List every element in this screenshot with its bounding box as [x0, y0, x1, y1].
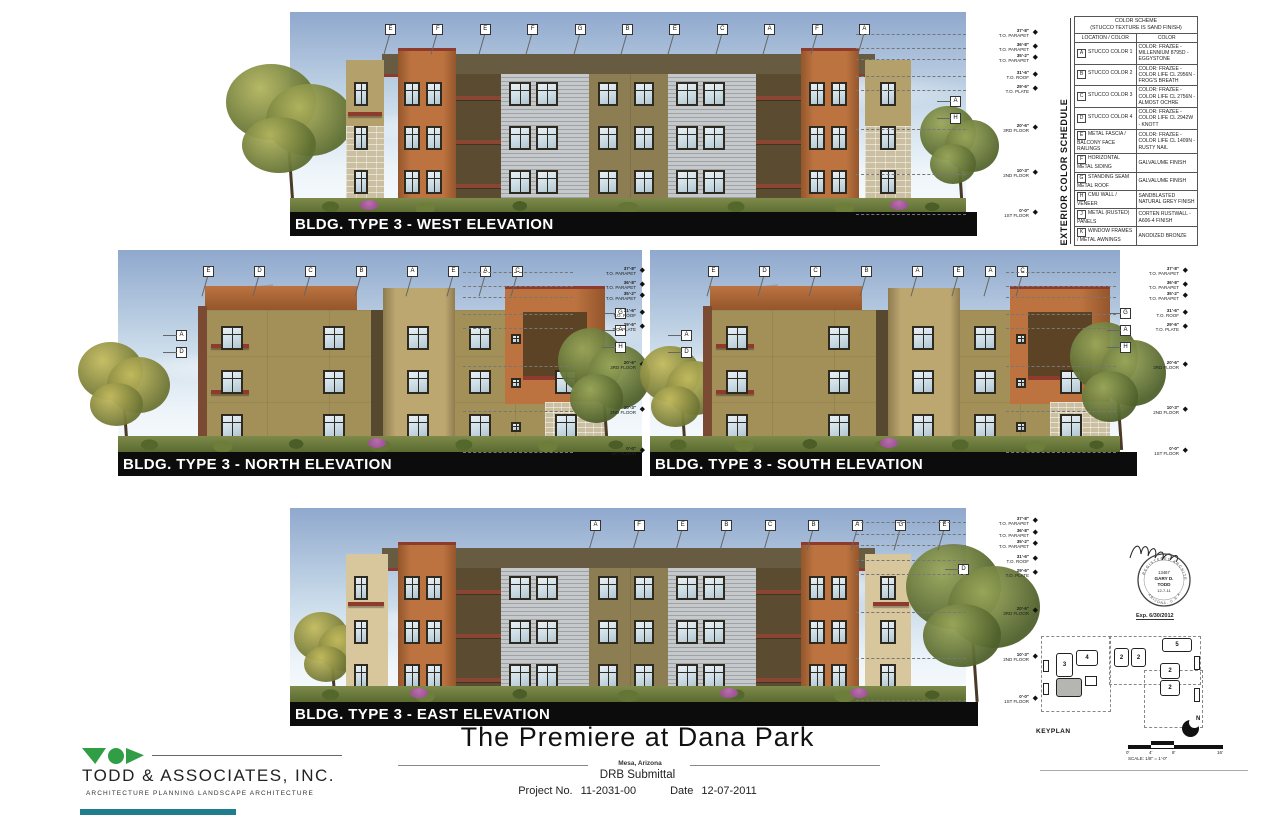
level-text: ◆ — [640, 267, 645, 275]
window — [676, 170, 698, 194]
window — [831, 620, 847, 644]
seal-expiry: Exp. 6/30/2012 — [1136, 613, 1174, 620]
level-text: ◆ — [1033, 607, 1038, 615]
level-marker: 31'-6"T.O. ROOF◆ — [575, 308, 645, 318]
callout-tag: D — [176, 347, 187, 358]
window — [703, 576, 725, 600]
color-text: COLOR: FRAZEE - MILLENNIUM 8795D - EGGYS… — [1136, 42, 1198, 64]
schedule-location-cell: JMETAL (RUSTED) PANELS — [1075, 209, 1137, 227]
callout-tag: B — [356, 266, 367, 277]
level-marker: 29'-6"T.O. PLATE◆ — [968, 568, 1038, 578]
keyplan-garage — [1043, 683, 1049, 695]
level-marker: 35'-2"T.O. PARAPET◆ — [968, 539, 1038, 549]
window — [676, 576, 698, 600]
scale-caption: SCALE: 1/8" = 1'-0" — [1128, 756, 1167, 761]
south-elevation-label: BLDG. TYPE 3 - SOUTH ELEVATION — [655, 456, 923, 473]
level-marker: 36'-8"T.O. PARAPET◆ — [575, 280, 645, 290]
north-elevation-drawing: EDCBA EAC AD GAH BLDG. TYPE 3 - NORTH EL… — [118, 250, 642, 476]
level-text: ◆ — [1033, 71, 1038, 79]
level-text: 3RD FLOOR — [968, 611, 1029, 616]
window — [676, 82, 698, 106]
window — [831, 664, 847, 688]
color-text: COLOR: FRAZEE - COLOR LIFE CL 2756N - AL… — [1136, 86, 1198, 108]
window — [426, 664, 442, 688]
level-marker: 31'-6"T.O. ROOF◆ — [1118, 308, 1188, 318]
window — [509, 82, 531, 106]
level-text: ◆ — [640, 309, 645, 317]
level-marker: 36'-8"T.O. PARAPET◆ — [1118, 280, 1188, 290]
color-text: COLOR: FRAZEE - COLOR LIFE CL 2956N - FR… — [1136, 64, 1198, 86]
teal-accent-bar — [80, 809, 236, 815]
purple-shrub — [368, 438, 386, 448]
schedule-col1-header: LOCATION / COLOR — [1075, 33, 1137, 42]
east-facade — [346, 542, 911, 694]
level-text: ◆ — [1033, 540, 1038, 548]
window — [426, 82, 442, 106]
level-marker: 36'-8"T.O. PARAPET◆ — [968, 528, 1038, 538]
schedule-location-cell: KWINDOW FRAMES / METAL AWNINGS — [1075, 227, 1137, 245]
tree-foliage — [304, 646, 349, 682]
callout-tag: B — [721, 520, 732, 531]
callout-tag: D — [681, 347, 692, 358]
level-marker: 10'-3"2ND FLOOR◆ — [575, 405, 645, 415]
schedule-vertical-title: EXTERIOR COLOR SCHEDULE — [1059, 16, 1069, 246]
keyplan-building-3: 3 — [1056, 653, 1073, 677]
level-text: ◆ — [1183, 292, 1188, 300]
level-text: ◆ — [1183, 309, 1188, 317]
level-text: ◆ — [1183, 267, 1188, 275]
callout-tag: F — [812, 24, 823, 35]
color-key-box: B — [1077, 70, 1086, 79]
north-elevation-title-bar: BLDG. TYPE 3 - NORTH ELEVATION — [118, 452, 642, 476]
window — [509, 620, 531, 644]
schedule-location-cell: EMETAL FASCIA / BALCONY FACE RAILINGS — [1075, 129, 1137, 154]
window — [404, 170, 420, 194]
keyplan-outbuilding — [1085, 676, 1097, 686]
level-text: 3RD FLOOR — [1118, 365, 1179, 370]
window — [354, 82, 368, 106]
level-text: 1ST FLOOR — [968, 699, 1029, 704]
window — [426, 576, 442, 600]
level-text: 1ST FLOOR — [968, 213, 1029, 218]
project-no-value: 11-2031-00 — [581, 785, 636, 797]
level-marker: 20'-6"3RD FLOOR◆ — [968, 606, 1038, 616]
color-key-box: E — [1077, 131, 1086, 140]
schedule-rows: ASTUCCO COLOR 1 COLOR: FRAZEE - MILLENNI… — [1075, 42, 1198, 245]
purple-shrub — [890, 200, 908, 210]
window — [809, 576, 825, 600]
seal-date: 12-7-11 — [1157, 588, 1171, 593]
schedule-header-line1: COLOR SCHEME — [1115, 18, 1157, 24]
keyplan-building-2: 2 — [1160, 663, 1180, 679]
purple-shrub — [850, 688, 868, 698]
window — [634, 126, 654, 150]
window — [598, 82, 618, 106]
level-text: ◆ — [640, 323, 645, 331]
level-text: T.O. PARAPET — [968, 58, 1029, 63]
level-marker: 0'-0"1ST FLOOR◆ — [1118, 446, 1188, 456]
schedule-row: CSTUCCO COLOR 3 COLOR: FRAZEE - COLOR LI… — [1075, 86, 1198, 108]
callout-tag: E — [448, 266, 459, 277]
window — [831, 82, 847, 106]
level-text: T.O. PARAPET — [575, 296, 636, 301]
date-label: Date — [670, 785, 693, 797]
level-text: T.O. PARAPET — [968, 521, 1029, 526]
west-elevation-drawing: EFEFGBECAFA AH BLDG. TYPE 3 - WEST ELEVA… — [290, 12, 977, 236]
tree — [226, 64, 358, 204]
north-elevation-label: BLDG. TYPE 3 - NORTH ELEVATION — [123, 456, 392, 473]
level-marker: 35'-2"T.O. PARAPET◆ — [575, 291, 645, 301]
window — [703, 664, 725, 688]
color-key-box: F — [1077, 155, 1086, 164]
level-marker: 29'-6"T.O. PLATE◆ — [575, 322, 645, 332]
callout-tag: G — [575, 24, 586, 35]
level-text: ◆ — [1033, 85, 1038, 93]
schedule-location-cell: CSTUCCO COLOR 3 — [1075, 86, 1137, 108]
drawing-sheet: EFEFGBECAFA AH BLDG. TYPE 3 - WEST ELEVA… — [0, 0, 1275, 825]
color-text: GALVALUME FINISH — [1136, 172, 1198, 190]
level-marker: 29'-6"T.O. PLATE◆ — [1118, 322, 1188, 332]
callout-tag: A — [590, 520, 601, 531]
color-key-box: D — [1077, 114, 1086, 123]
color-key-box: C — [1077, 92, 1086, 101]
level-text: T.O. PARAPET — [968, 533, 1029, 538]
window — [809, 82, 825, 106]
callout-tag: B — [808, 520, 819, 531]
level-marker: 20'-6"3RD FLOOR◆ — [575, 360, 645, 370]
level-marker: 37'-8"T.O. PARAPET◆ — [968, 516, 1038, 526]
window — [404, 664, 420, 688]
level-marker: 37'-8"T.O. PARAPET◆ — [575, 266, 645, 276]
window — [536, 620, 558, 644]
callout-tag: D — [759, 266, 770, 277]
level-text: ◆ — [1183, 281, 1188, 289]
window — [809, 620, 825, 644]
north-facade — [205, 286, 605, 448]
level-text: ◆ — [1033, 529, 1038, 537]
level-text: ◆ — [1033, 124, 1038, 132]
level-text: 2ND FLOOR — [1118, 410, 1179, 415]
level-text: 2ND FLOOR — [968, 173, 1029, 178]
level-text: ◆ — [1033, 517, 1038, 525]
schedule-location-cell: HCMU WALL / VENEER — [1075, 190, 1137, 208]
level-text: T.O. PARAPET — [968, 33, 1029, 38]
level-marker: 36'-8"T.O. PARAPET◆ — [968, 42, 1038, 52]
keyplan-garage — [1194, 656, 1200, 670]
firm-logo-icon — [82, 748, 144, 766]
callout-tag: E — [953, 266, 964, 277]
callout-tag: E — [385, 24, 396, 35]
level-marker: 35'-2"T.O. PARAPET◆ — [1118, 291, 1188, 301]
window — [509, 576, 531, 600]
callout-tag: A — [985, 266, 996, 277]
level-text: 2ND FLOOR — [968, 657, 1029, 662]
window — [831, 576, 847, 600]
level-marker: 29'-6"T.O. PLATE◆ — [968, 84, 1038, 94]
level-marker: 31'-6"T.O. ROOF◆ — [968, 554, 1038, 564]
callout-tag: A — [950, 96, 961, 107]
firm-name: TODD & ASSOCIATES, INC. — [82, 766, 335, 786]
purple-shrub — [360, 200, 378, 210]
level-text: 1ST FLOOR — [575, 451, 636, 456]
window-grid — [346, 542, 911, 694]
callout-tag: A — [912, 266, 923, 277]
window — [880, 664, 896, 688]
schedule-row: HCMU WALL / VENEER SANDBLASTED NATURAL G… — [1075, 190, 1198, 208]
level-marker: 37'-8"T.O. PARAPET◆ — [1118, 266, 1188, 276]
window — [509, 126, 531, 150]
level-marker: 0'-0"1ST FLOOR◆ — [968, 694, 1038, 704]
callout-tag: F — [634, 520, 645, 531]
callout-tag: A — [681, 330, 692, 341]
window — [634, 576, 654, 600]
level-text: T.O. PARAPET — [575, 285, 636, 290]
logo-rule-line — [152, 755, 342, 756]
color-text: GALVALUME FINISH — [1136, 154, 1198, 172]
window — [676, 620, 698, 644]
seal-name1: GARY D. — [1155, 576, 1174, 581]
window — [598, 664, 618, 688]
west-elevation-label: BLDG. TYPE 3 - WEST ELEVATION — [295, 216, 554, 233]
firm-tagline: ARCHITECTURE PLANNING LANDSCAPE ARCHITEC… — [86, 790, 314, 797]
color-text: ANODIZED BRONZE — [1136, 227, 1198, 245]
callout-tag: B — [622, 24, 633, 35]
window — [831, 126, 847, 150]
level-text: ◆ — [640, 281, 645, 289]
level-ladder-east: 37'-8"T.O. PARAPET◆36'-8"T.O. PARAPET◆35… — [968, 508, 1038, 714]
level-text: T.O. PARAPET — [1118, 271, 1179, 276]
window — [880, 82, 896, 106]
window — [634, 170, 654, 194]
window — [703, 170, 725, 194]
window — [404, 126, 420, 150]
exterior-color-schedule: EXTERIOR COLOR SCHEDULE COLOR SCHEME (ST… — [1074, 16, 1198, 246]
window — [634, 82, 654, 106]
callout-row: EDCBA — [203, 266, 418, 277]
level-text: T.O. PLATE — [1118, 327, 1179, 332]
level-marker: 0'-0"1ST FLOOR◆ — [575, 446, 645, 456]
color-schedule-table: COLOR SCHEME (STUCCO TEXTURE IS SAND FIN… — [1074, 16, 1198, 246]
callout-stack: AD — [681, 330, 692, 358]
window — [634, 664, 654, 688]
logo-triangle-icon — [82, 748, 106, 764]
purple-shrub — [880, 438, 898, 448]
tree — [78, 342, 174, 450]
project-title: The Premiere at Dana Park — [0, 722, 1275, 753]
west-facade — [346, 48, 911, 200]
level-text: ◆ — [1033, 43, 1038, 51]
date-value: 12-07-2011 — [701, 785, 756, 797]
seal-number: 13467 — [1158, 570, 1170, 575]
schedule-bracket-line — [1070, 18, 1071, 244]
window — [703, 126, 725, 150]
level-text: ◆ — [1033, 555, 1038, 563]
window — [536, 126, 558, 150]
level-marker: 10'-3"2ND FLOOR◆ — [968, 652, 1038, 662]
color-key-box: K — [1077, 228, 1086, 237]
window — [404, 620, 420, 644]
window — [809, 170, 825, 194]
purple-shrub — [410, 688, 428, 698]
keyplan-building-5: 5 — [1162, 638, 1192, 652]
color-text: CORTEN RUSTWALL - A606-4 FINISH — [1136, 209, 1198, 227]
schedule-row: FHORIZONTAL METAL SIDING GALVALUME FINIS… — [1075, 154, 1198, 172]
level-text: T.O. PLATE — [968, 89, 1029, 94]
window — [880, 576, 896, 600]
window — [404, 82, 420, 106]
tree-foliage — [90, 383, 144, 426]
schedule-row: GSTANDING SEAM METAL ROOF GALVALUME FINI… — [1075, 172, 1198, 190]
location-text: STUCCO COLOR 1 — [1088, 49, 1132, 55]
keyplan-garage — [1194, 688, 1200, 702]
window — [703, 82, 725, 106]
west-elevation-title-bar: BLDG. TYPE 3 - WEST ELEVATION — [290, 212, 977, 236]
callout-tag: A — [764, 24, 775, 35]
schedule-col2-header: COLOR — [1136, 33, 1198, 42]
window — [598, 170, 618, 194]
schedule-location-cell: ASTUCCO COLOR 1 — [1075, 42, 1137, 64]
level-text: T.O. PARAPET — [1118, 285, 1179, 290]
window — [676, 664, 698, 688]
level-text: ◆ — [1033, 209, 1038, 217]
level-text: 3RD FLOOR — [575, 365, 636, 370]
window — [598, 620, 618, 644]
schedule-location-cell: BSTUCCO COLOR 2 — [1075, 64, 1137, 86]
level-text: ◆ — [640, 292, 645, 300]
window — [536, 576, 558, 600]
level-marker: 10'-3"2ND FLOOR◆ — [1118, 405, 1188, 415]
color-key-box: G — [1077, 174, 1086, 183]
callout-tag: D — [254, 266, 265, 277]
window — [354, 126, 368, 150]
window-grid — [205, 286, 605, 448]
callout-tag: C — [305, 266, 316, 277]
keyplan-subject-building — [1056, 678, 1082, 697]
window — [404, 576, 420, 600]
level-text: T.O. PARAPET — [575, 271, 636, 276]
window — [880, 620, 896, 644]
window — [536, 170, 558, 194]
schedule-location-cell: FHORIZONTAL METAL SIDING — [1075, 154, 1137, 172]
level-marker: 37'-8"T.O. PARAPET◆ — [968, 28, 1038, 38]
callout-tag: E — [480, 24, 491, 35]
schedule-header: COLOR SCHEME (STUCCO TEXTURE IS SAND FIN… — [1075, 17, 1198, 34]
window — [426, 170, 442, 194]
schedule-row: JMETAL (RUSTED) PANELS CORTEN RUSTWALL -… — [1075, 209, 1198, 227]
window — [703, 620, 725, 644]
schedule-location-cell: DSTUCCO COLOR 4 — [1075, 108, 1137, 130]
level-text: ◆ — [1033, 54, 1038, 62]
schedule-row: ASTUCCO COLOR 1 COLOR: FRAZEE - MILLENNI… — [1075, 42, 1198, 64]
tree-foliage — [242, 117, 316, 173]
color-text: SANDBLASTED NATURAL GREY FINISH — [1136, 190, 1198, 208]
south-elevation-title-bar: BLDG. TYPE 3 - SOUTH ELEVATION — [650, 452, 1137, 476]
level-marker: 35'-2"T.O. PARAPET◆ — [968, 53, 1038, 63]
window — [809, 126, 825, 150]
level-text: T.O. PLATE — [968, 573, 1029, 578]
window — [676, 126, 698, 150]
level-marker: 20'-6"3RD FLOOR◆ — [1118, 360, 1188, 370]
schedule-row: KWINDOW FRAMES / METAL AWNINGS ANODIZED … — [1075, 227, 1198, 245]
level-ladder-west: 37'-8"T.O. PARAPET◆36'-8"T.O. PARAPET◆35… — [968, 12, 1038, 224]
color-key-box: H — [1077, 192, 1086, 201]
project-no-label: Project No. — [518, 785, 572, 797]
window — [354, 170, 368, 194]
level-marker: 10'-3"2ND FLOOR◆ — [968, 168, 1038, 178]
level-ladder-south: 37'-8"T.O. PARAPET◆36'-8"T.O. PARAPET◆35… — [1118, 250, 1188, 462]
callout-tag: A — [407, 266, 418, 277]
window-grid — [346, 48, 911, 200]
keyplan-boundary — [1041, 636, 1111, 712]
tree-foliage — [651, 386, 700, 428]
purple-shrub — [720, 688, 738, 698]
schedule-row: DSTUCCO COLOR 4 COLOR: FRAZEE - COLOR LI… — [1075, 108, 1198, 130]
callout-row: EFEFGBECAFA — [385, 24, 870, 35]
level-text: T.O. PARAPET — [968, 47, 1029, 52]
south-elevation-drawing: EDCBA EAC AD GAH BLDG. TYPE 3 - SOUTH EL… — [650, 250, 1137, 476]
keyplan-building-2: 2 — [1114, 648, 1129, 667]
logo-arrow-icon — [126, 748, 144, 764]
color-key-box: J — [1077, 210, 1086, 219]
keyplan-garage — [1043, 660, 1049, 672]
keyplan-building-4: 4 — [1076, 650, 1098, 666]
window — [354, 664, 368, 688]
callout-tag: E — [203, 266, 214, 277]
level-text: T.O. ROOF — [1118, 313, 1179, 318]
callout-row: EDCBA — [708, 266, 923, 277]
location-text: STUCCO COLOR 4 — [1088, 114, 1132, 120]
level-text: ◆ — [1183, 361, 1188, 369]
location-text: STUCCO COLOR 2 — [1088, 70, 1132, 76]
east-elevation-drawing: AFEBCBAGE D BLDG. TYPE 3 - EAST ELEVATIO… — [290, 508, 978, 726]
level-text: T.O. PARAPET — [968, 544, 1029, 549]
level-text: ◆ — [1033, 29, 1038, 37]
window — [598, 126, 618, 150]
callout-tag: F — [527, 24, 538, 35]
south-facade — [710, 286, 1110, 448]
level-text: 1ST FLOOR — [1118, 451, 1179, 456]
callout-tag: F — [432, 24, 443, 35]
callout-stack: AD — [176, 330, 187, 358]
keyplan-building-2: 2 — [1131, 648, 1146, 667]
callout-stack: AH — [950, 96, 961, 124]
window-grid — [710, 286, 1110, 448]
level-text: T.O. PLATE — [575, 327, 636, 332]
level-text: ◆ — [1183, 323, 1188, 331]
window — [426, 126, 442, 150]
level-text: 2ND FLOOR — [575, 410, 636, 415]
level-text: T.O. PARAPET — [1118, 296, 1179, 301]
schedule-header-line2: (STUCCO TEXTURE IS SAND FINISH) — [1090, 25, 1182, 31]
level-marker: 31'-6"T.O. ROOF◆ — [968, 70, 1038, 80]
level-text: T.O. ROOF — [968, 75, 1029, 80]
seal-name2: TODD — [1158, 582, 1172, 587]
window — [831, 170, 847, 194]
architect-seal: REGISTERED ARCHITECT ARIZONA, U.S.A. 134… — [1120, 540, 1204, 612]
window — [509, 664, 531, 688]
callout-tag: E — [677, 520, 688, 531]
level-text: ◆ — [1033, 169, 1038, 177]
level-text: T.O. ROOF — [968, 559, 1029, 564]
window — [426, 620, 442, 644]
color-text: COLOR: FRAZEE - COLOR LIFE CL 1409N - RU… — [1136, 129, 1198, 154]
callout-tag: E — [708, 266, 719, 277]
callout-tag: H — [950, 113, 961, 124]
east-elevation-label: BLDG. TYPE 3 - EAST ELEVATION — [295, 706, 550, 723]
level-ladder-north: 37'-8"T.O. PARAPET◆36'-8"T.O. PARAPET◆35… — [575, 250, 645, 462]
schedule-row: BSTUCCO COLOR 2 COLOR: FRAZEE - COLOR LI… — [1075, 64, 1198, 86]
level-marker: 0'-0"1ST FLOOR◆ — [968, 208, 1038, 218]
